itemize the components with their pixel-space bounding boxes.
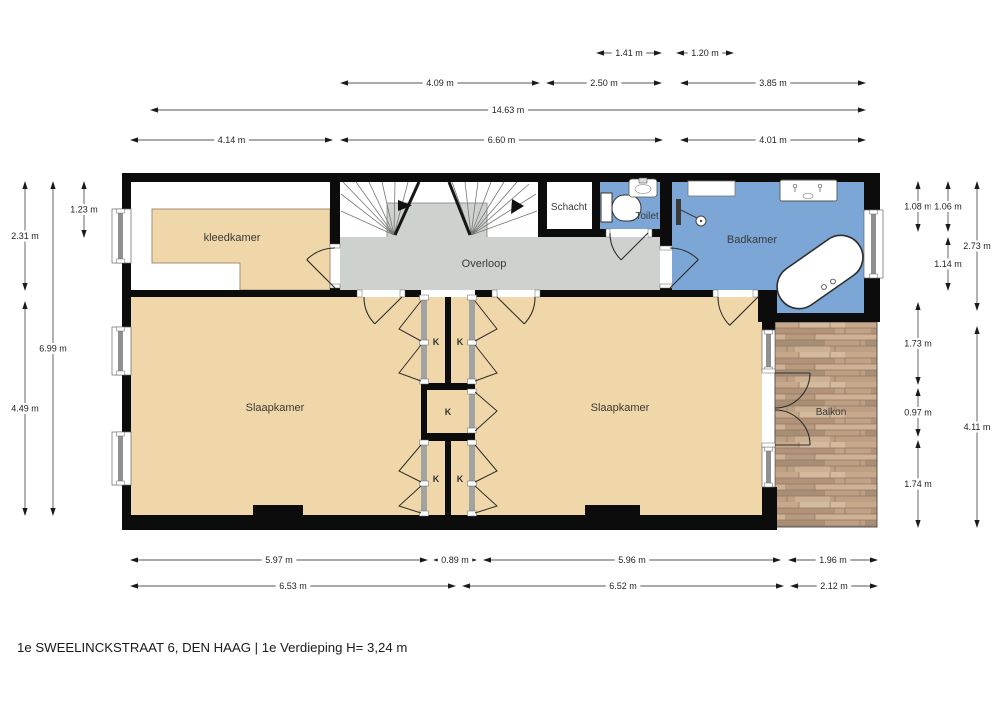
dimension-label: 1.06 m [934,202,962,212]
label-closet-2: K [457,337,464,347]
sink-icon [629,178,657,197]
label-closet-3: K [445,407,452,417]
dimension-label: 4.14 m [218,135,246,145]
dimension-label: 1.08 m [904,202,932,212]
dimension-label: 5.97 m [265,555,293,565]
dimension-label: 6.99 m [39,344,67,354]
label-closet-1: K [433,337,440,347]
dimension-label: 14.63 m [492,105,525,115]
dimension-h: 0.89 m [433,555,477,566]
label-closet-4: K [433,474,440,484]
dimension-label: 1.73 m [904,339,932,349]
chimney-right [585,505,640,517]
dimension-label: 4.49 m [11,404,39,414]
window-balkon-2 [762,447,775,487]
label-overloop: Overloop [462,258,507,270]
dimension-label: 6.60 m [488,135,516,145]
window-balkon-1 [762,330,775,371]
dimension-label: 6.53 m [279,581,307,591]
dimension-label: 4.09 m [426,78,454,88]
label-slaapkamer-left: Slaapkamer [246,402,305,414]
bathroom-window-niche [688,181,735,196]
floor-plan: kleedkamer Overloop Schacht Toilet Badka… [0,0,1000,707]
dimension-label: 4.01 m [759,135,787,145]
dimension-label: 1.74 m [904,479,932,489]
dimension-label: 1.41 m [615,48,643,58]
dimension-label: 6.52 m [609,581,637,591]
dimension-label: 2.31 m [11,231,39,241]
window-slaapkamer-left-2 [112,432,131,485]
dimension-label: 4.11 m [964,422,991,432]
label-toilet: Toilet [635,211,659,222]
floorplan-canvas: kleedkamer Overloop Schacht Toilet Badka… [0,0,1000,707]
dimension-label: 1.20 m [691,48,719,58]
dimension-label: 2.12 m [820,581,848,591]
window-slaapkamer-left-1 [112,327,131,375]
dimension-label: 2.73 m [963,241,991,251]
dimension-label: 0.97 m [904,408,932,418]
label-badkamer: Badkamer [727,234,777,246]
dimension-label: 2.50 m [590,78,618,88]
dimension-label: 1.96 m [819,555,847,565]
label-schacht: Schacht [551,202,587,213]
dimension-label: 1.14 m [934,259,962,269]
dimension-label: 0.89 m [441,555,469,565]
label-kleedkamer: kleedkamer [204,232,261,244]
vanity-icon [780,180,837,201]
chimney-left [253,505,303,517]
window-kleedkamer [112,209,131,263]
dimension-label: 3.85 m [759,78,787,88]
window-badkamer [864,210,883,278]
label-slaapkamer-right: Slaapkamer [591,402,650,414]
label-closet-5: K [457,474,464,484]
room-balkon [775,322,877,527]
label-balkon: Balkon [816,407,847,418]
plan-title: 1e SWEELINCKSTRAAT 6, DEN HAAG | 1e Verd… [17,640,407,655]
dimension-label: 1.23 m [70,205,98,215]
dimension-label: 5.96 m [618,555,646,565]
